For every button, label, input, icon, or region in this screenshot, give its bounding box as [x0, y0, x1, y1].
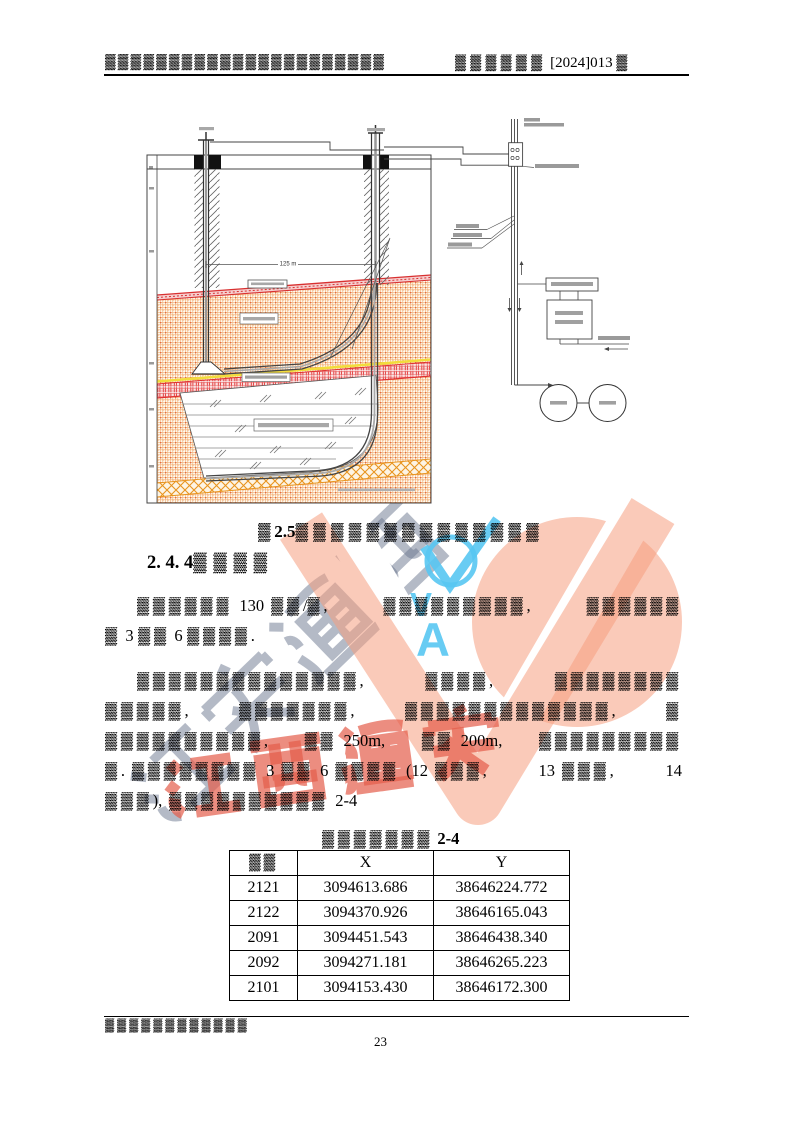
svg-text:125 m: 125 m — [280, 262, 297, 268]
svg-text:A: A — [416, 613, 450, 666]
